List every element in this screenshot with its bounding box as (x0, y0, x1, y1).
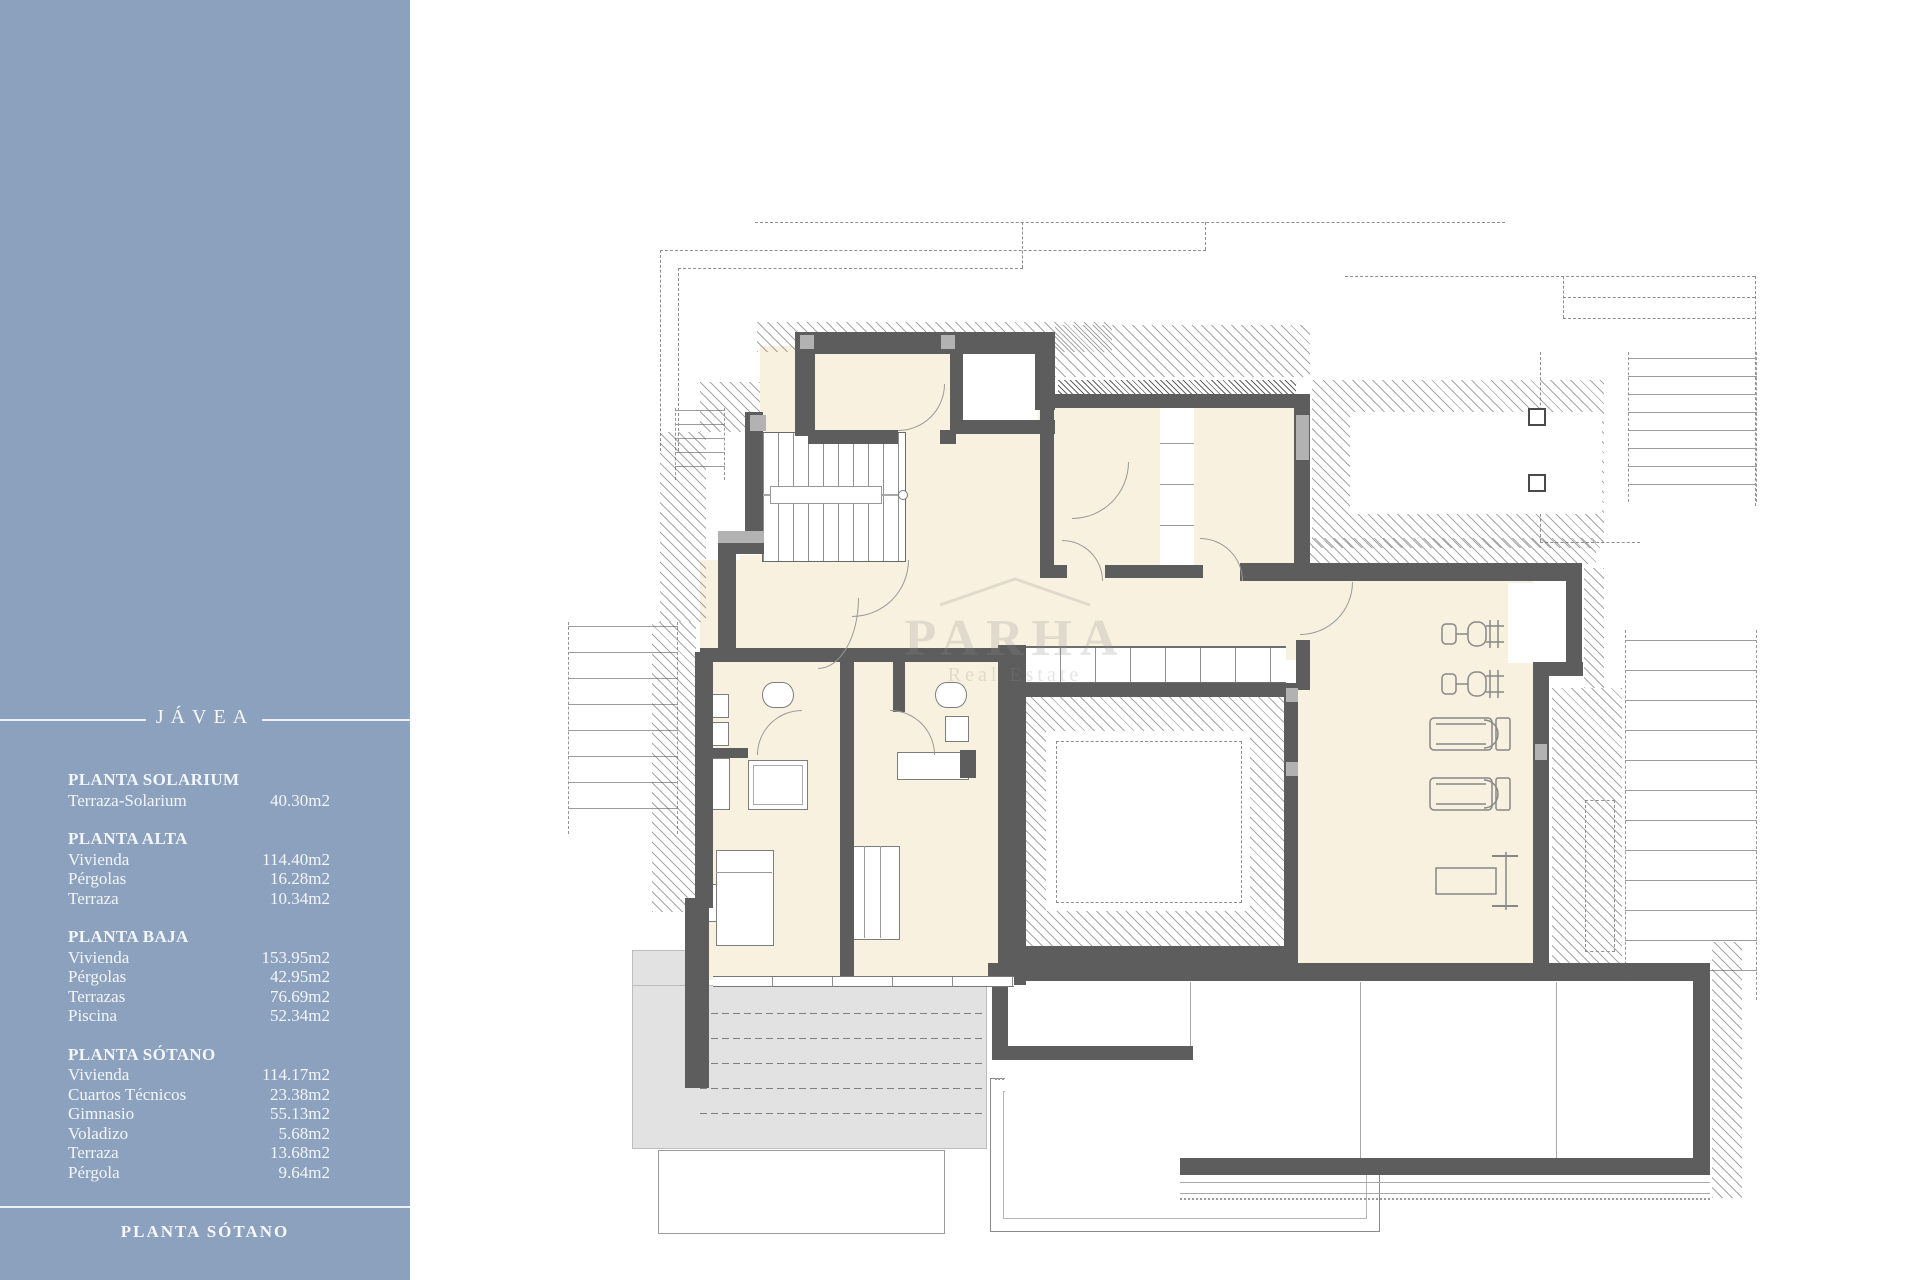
paving-joint (1556, 982, 1557, 1160)
plan-line (1442, 674, 1456, 694)
toilet (762, 682, 794, 708)
area-row: Pérgola9.64m2 (68, 1163, 330, 1183)
wall-segment (940, 430, 956, 444)
pilaster (718, 531, 764, 543)
lower-terrace-outline (658, 1150, 945, 1234)
treadmill-icon (1428, 712, 1514, 756)
pilaster (800, 335, 814, 349)
hatch-band (1310, 538, 1596, 564)
area-row: Voladizo5.68m2 (68, 1124, 330, 1144)
wall-segment (1105, 565, 1203, 578)
area-value: 10.34m2 (270, 889, 330, 909)
dashed-outline (755, 222, 1505, 223)
area-row: Terraza13.68m2 (68, 1143, 330, 1163)
wall-segment (1296, 640, 1310, 690)
lightwell-floor (1350, 412, 1602, 514)
pool-terrace (1005, 982, 1695, 1160)
shelf-strip (1160, 400, 1194, 566)
step-line (1180, 1193, 1710, 1194)
area-label: Terraza (68, 889, 119, 909)
dashed-outline (1563, 318, 1755, 319)
area-label: Terraza (68, 1143, 119, 1163)
area-value: 42.95m2 (270, 967, 330, 987)
area-value: 9.64m2 (279, 1163, 330, 1183)
pilaster (1535, 744, 1547, 760)
area-label: Terraza-Solarium (68, 791, 187, 811)
corridor-glazing (1026, 646, 1286, 684)
gravel-strip (1180, 1198, 1710, 1204)
area-label: Vivienda (68, 948, 129, 968)
area-label: Vivienda (68, 1065, 129, 1085)
wall-segment (1284, 683, 1298, 977)
plan-line (1468, 622, 1486, 646)
shower (748, 760, 808, 810)
area-row: Pérgolas42.95m2 (68, 967, 330, 987)
floor-plan-page: JÁVEA PLANTA SOLARIUMTerraza-Solarium40.… (0, 0, 1920, 1280)
sofa (850, 846, 900, 940)
wall-segment (1040, 394, 1298, 408)
area-row: Terrazas76.69m2 (68, 987, 330, 1007)
pergola-post-outline (1585, 800, 1615, 952)
area-value: 52.34m2 (270, 1006, 330, 1026)
wall-segment (998, 683, 1298, 697)
weight-bench-icon (1434, 850, 1518, 912)
bath-cabinet (897, 752, 969, 780)
room-closet (963, 346, 1038, 420)
sofa-cushion-line (864, 846, 865, 938)
sofa-cushion-line (880, 846, 881, 938)
dashed-outline (1022, 222, 1023, 268)
column-marker (1528, 474, 1546, 492)
area-row: Piscina52.34m2 (68, 1006, 330, 1026)
area-row: Cuartos Técnicos23.38m2 (68, 1085, 330, 1105)
toilet (935, 682, 967, 708)
gym-machine-icon (1438, 666, 1510, 702)
area-value: 5.68m2 (279, 1124, 330, 1144)
wall-segment (795, 332, 1053, 354)
plan-line (1442, 620, 1504, 648)
pilaster (1296, 415, 1309, 460)
gym-machine-icon (1438, 616, 1510, 652)
area-label: Voladizo (68, 1124, 128, 1144)
plan-line (1430, 778, 1510, 810)
plan-line (1436, 852, 1518, 910)
area-value: 114.17m2 (262, 1065, 330, 1085)
area-section: PLANTA ALTAVivienda114.40m2Pérgolas16.28… (68, 829, 330, 908)
plan-line (1468, 672, 1486, 696)
wall-segment (1693, 978, 1710, 1164)
stair-rail (770, 486, 882, 504)
pergola-outline (1628, 352, 1757, 502)
column-marker (1528, 408, 1546, 426)
wall-segment (808, 430, 898, 444)
wall-segment (1533, 662, 1549, 964)
step-line (1180, 1182, 1710, 1183)
pilaster (941, 335, 955, 349)
wall-segment (718, 552, 736, 660)
area-section: PLANTA SOLARIUMTerraza-Solarium40.30m2 (68, 770, 330, 810)
area-label: Terrazas (68, 987, 125, 1007)
area-value: 153.95m2 (262, 948, 330, 968)
floor-label: PLANTA SÓTANO (0, 1222, 410, 1242)
bed (716, 850, 774, 946)
wall-segment (893, 648, 905, 712)
dashed-outline (1345, 276, 1755, 277)
area-section: PLANTA SÓTANOVivienda114.17m2Cuartos Téc… (68, 1045, 330, 1183)
gym-recess (1508, 583, 1566, 663)
pilaster (750, 415, 766, 431)
wall-segment (1566, 570, 1582, 670)
area-label: Gimnasio (68, 1104, 134, 1124)
pilaster (1286, 688, 1298, 702)
area-value: 40.30m2 (270, 791, 330, 811)
sidebar: JÁVEA PLANTA SOLARIUMTerraza-Solarium40.… (0, 0, 410, 1280)
area-row: Gimnasio55.13m2 (68, 1104, 330, 1124)
area-label: Pérgolas (68, 869, 126, 889)
courtyard-pool-outline (1056, 741, 1242, 903)
wall-segment (1240, 563, 1582, 581)
area-value: 13.68m2 (270, 1143, 330, 1163)
wall-segment (998, 946, 1298, 963)
area-row: Terraza-Solarium40.30m2 (68, 791, 330, 811)
area-row: Pérgolas16.28m2 (68, 869, 330, 889)
area-label: Pérgolas (68, 967, 126, 987)
area-value: 114.40m2 (262, 850, 330, 870)
terrace-deck-boards (700, 990, 984, 1138)
treadmill-icon (1428, 772, 1514, 816)
dashed-outline (1205, 222, 1206, 250)
hatch-band (660, 432, 706, 622)
area-row: Vivienda114.17m2 (68, 1065, 330, 1085)
hatch-band (652, 622, 696, 912)
area-label: Pérgola (68, 1163, 120, 1183)
title-rule-right (262, 719, 410, 721)
stair-pole (898, 490, 908, 500)
section-header: PLANTA BAJA (68, 927, 330, 947)
wall-pillar (685, 898, 709, 1088)
plan-line (1430, 718, 1510, 750)
area-section: PLANTA BAJAVivienda153.95m2Pérgolas42.95… (68, 927, 330, 1026)
section-header: PLANTA ALTA (68, 829, 330, 849)
footer-rule (0, 1206, 410, 1208)
area-label: Cuartos Técnicos (68, 1085, 186, 1105)
plan-line (1442, 670, 1504, 698)
wall-segment (1180, 1158, 1710, 1175)
sliding-door-glazing (713, 976, 1014, 987)
paving-joint (1360, 982, 1361, 1160)
wall-segment (1040, 394, 1054, 578)
wall-segment (960, 750, 976, 778)
plan-line (1442, 624, 1456, 644)
plan-line (1436, 868, 1496, 894)
area-row: Terraza10.34m2 (68, 889, 330, 909)
area-value: 55.13m2 (270, 1104, 330, 1124)
area-value: 76.69m2 (270, 987, 330, 1007)
area-row: Vivienda114.40m2 (68, 850, 330, 870)
pilaster (1286, 762, 1298, 776)
wall-segment (840, 652, 854, 982)
dashed-outline (1563, 276, 1564, 318)
dashed-outline (1563, 297, 1755, 298)
area-label: Piscina (68, 1006, 117, 1026)
paving-joint (1190, 982, 1191, 1046)
page-title: JÁVEA (128, 706, 282, 729)
section-header: PLANTA SÓTANO (68, 1045, 330, 1065)
bed-pillow-line (716, 872, 772, 873)
area-value: 23.38m2 (270, 1085, 330, 1105)
wall-segment (988, 963, 1710, 981)
sink (945, 716, 969, 742)
wall-segment (1005, 1046, 1193, 1060)
plan-line (1430, 718, 1492, 750)
title-rule-left (0, 719, 146, 721)
hatch-band (1055, 325, 1310, 377)
area-label: Vivienda (68, 850, 129, 870)
plan-line (1430, 778, 1492, 810)
hatch-band (1584, 568, 1604, 688)
area-table: PLANTA SOLARIUMTerraza-Solarium40.30m2PL… (68, 770, 330, 1201)
hatch-band (1712, 942, 1742, 1198)
wall-segment (695, 652, 713, 908)
area-value: 16.28m2 (270, 869, 330, 889)
section-header: PLANTA SOLARIUM (68, 770, 330, 790)
area-row: Vivienda153.95m2 (68, 948, 330, 968)
wall-segment (700, 648, 1020, 662)
